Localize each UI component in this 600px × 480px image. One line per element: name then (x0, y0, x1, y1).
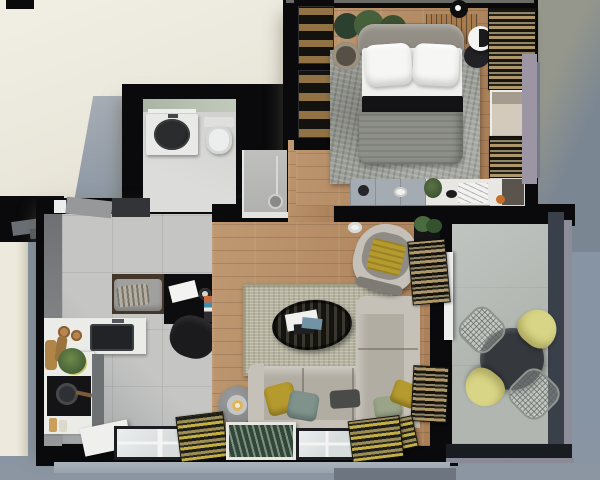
nightstand-left (332, 42, 360, 70)
pillow-teal (286, 390, 320, 423)
entry-door-dark (112, 198, 150, 217)
kitchen-bowl-2 (71, 330, 82, 341)
pillow-charcoal (329, 389, 360, 409)
window-sill-edge (537, 62, 540, 178)
curtain-pile-right (348, 415, 405, 463)
cup-saucer (348, 222, 362, 233)
wardrobe-glass-door-bottom (298, 70, 334, 138)
sink-tap (112, 319, 124, 323)
window-sill-mauve (522, 54, 537, 184)
bedroom-blind-stack-mid (489, 136, 526, 178)
vessel-sink (154, 119, 190, 150)
shower-head (268, 194, 283, 209)
kitchen-plant (58, 348, 86, 374)
balcony-bottom-sill (446, 458, 574, 463)
shutter-stack-upper (407, 238, 450, 305)
table-book-blue (301, 317, 322, 330)
shower-glass (242, 150, 244, 214)
curtain-pile-left (175, 411, 228, 463)
counter-end-cabinet (92, 354, 104, 432)
wardrobe-glass-door-top (298, 6, 334, 64)
dresser-bowl (358, 185, 369, 196)
floorplan-render (0, 0, 600, 480)
dresser-fruit (496, 195, 505, 204)
balcony-railing-frame (564, 220, 572, 456)
entry-door-white (54, 200, 66, 213)
dresser-berries (446, 190, 457, 198)
bed-duvet (359, 112, 463, 164)
shower-column (276, 156, 278, 198)
speaker-dot (455, 5, 461, 11)
bathroom-mirror (148, 109, 196, 113)
shutter-stack-lower (411, 365, 450, 423)
corner-plant-2 (426, 219, 442, 233)
bed-pillow-left (364, 42, 414, 87)
kitchen-bottles-2 (59, 420, 67, 432)
candle (232, 400, 243, 411)
dresser-plant (424, 178, 442, 198)
dresser-sketch (458, 183, 488, 203)
toilet-bowl (206, 126, 232, 154)
roof-notch (6, 0, 34, 9)
balcony-bottom-frame (446, 444, 572, 458)
bed-pillow-right (412, 43, 460, 87)
kitchen-sink (90, 324, 134, 351)
bathroom-threshold (234, 212, 290, 218)
botanical-print (226, 422, 296, 460)
exterior-ledge-dark (334, 468, 456, 480)
sofa-seam (358, 348, 418, 350)
backdrop-cream-strip (0, 224, 28, 456)
dresser-cup (394, 187, 407, 197)
kitchen-bottles (49, 418, 57, 432)
sink-faucet (168, 114, 178, 118)
bench-pillow (116, 283, 150, 307)
